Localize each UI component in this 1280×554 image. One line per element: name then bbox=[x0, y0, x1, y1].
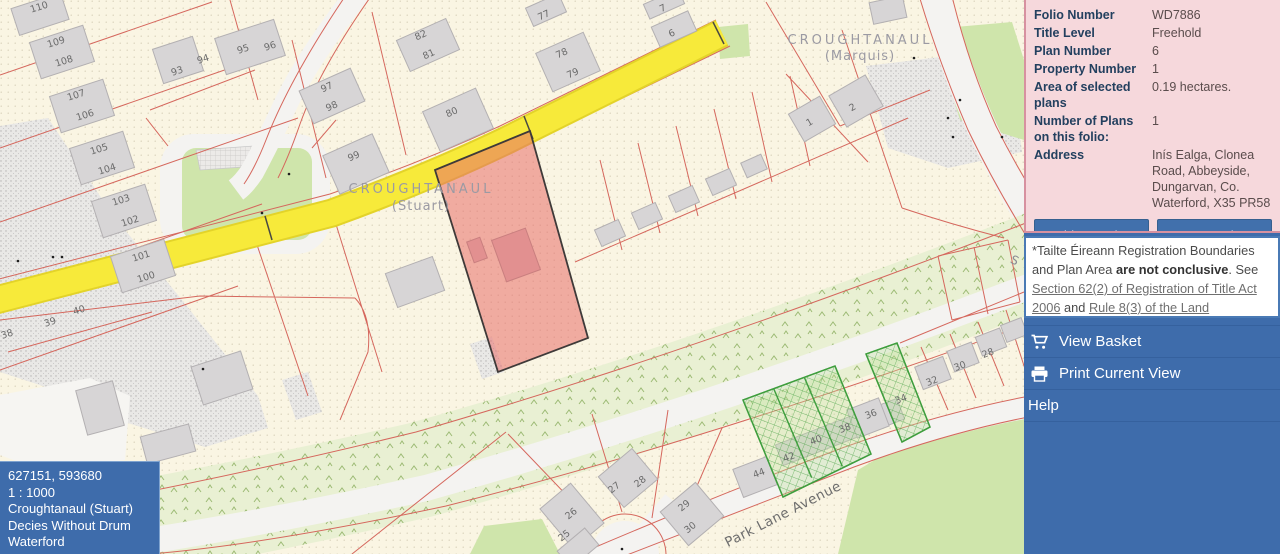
folio-row-value: 0.19 hectares. bbox=[1152, 79, 1280, 111]
folio-info-panel: Folio NumberWD7886 Title LevelFreehold P… bbox=[1024, 0, 1280, 233]
status-barony: Decies Without Drum bbox=[8, 518, 151, 535]
folio-row-value: 1 bbox=[1152, 61, 1280, 77]
view-basket-item[interactable]: View Basket bbox=[1024, 326, 1280, 358]
printer-icon bbox=[1031, 366, 1049, 382]
townland-stuart-name: CROUGHTANAUL bbox=[349, 182, 494, 197]
folio-row: Folio NumberWD7886 bbox=[1034, 6, 1280, 24]
map-viewer: CROUGHTANAUL (Marquis) CROUGHTANAUL (Stu… bbox=[0, 0, 1280, 554]
townland-marquis-name: CROUGHTANAUL bbox=[788, 33, 933, 48]
status-scale: 1 : 1000 bbox=[8, 485, 151, 502]
boundaries-disclaimer: *Tailte Éireann Registration Boundaries … bbox=[1024, 236, 1280, 318]
folio-row-label: Title Level bbox=[1034, 25, 1152, 41]
help-label: Help bbox=[1028, 397, 1059, 414]
folio-row-value: Inís Ealga, Clonea Road, Abbeyside, Dung… bbox=[1152, 147, 1280, 211]
map-status-box: 627151, 593680 1 : 1000 Croughtanaul (St… bbox=[0, 461, 160, 554]
folio-row: Property Number1 bbox=[1034, 60, 1280, 78]
sidebar-menu: View Basket Print Current View Help bbox=[1024, 325, 1280, 422]
folio-row-label: Folio Number bbox=[1034, 7, 1152, 23]
print-current-view-label: Print Current View bbox=[1059, 365, 1180, 382]
print-current-view-item[interactable]: Print Current View bbox=[1024, 358, 1280, 390]
add-to-basket-button[interactable]: Add to Basket bbox=[1034, 219, 1149, 233]
folio-row-label: Number of Plans on this folio: bbox=[1034, 113, 1152, 145]
folio-row-value: WD7886 bbox=[1152, 7, 1280, 23]
folio-row-value: 1 bbox=[1152, 113, 1280, 145]
folio-row-label: Address bbox=[1034, 147, 1152, 211]
folio-row-label: Area of selected plans bbox=[1034, 79, 1152, 111]
right-sidebar: Folio NumberWD7886 Title LevelFreehold P… bbox=[1024, 0, 1280, 554]
create-alert-button[interactable]: Create Alert bbox=[1157, 219, 1272, 233]
folio-row-value: 6 bbox=[1152, 43, 1280, 59]
status-coordinates: 627151, 593680 bbox=[8, 468, 151, 485]
folio-row-value: Freehold bbox=[1152, 25, 1280, 41]
folio-row: Plan Number6 bbox=[1034, 42, 1280, 60]
disclaimer-bold: are not conclusive bbox=[1116, 262, 1228, 277]
folio-row: Area of selected plans0.19 hectares. bbox=[1034, 78, 1280, 112]
townland-stuart-qualifier: (Stuart) bbox=[392, 199, 450, 214]
view-basket-label: View Basket bbox=[1059, 333, 1141, 350]
folio-row: AddressInís Ealga, Clonea Road, Abbeysid… bbox=[1034, 146, 1280, 212]
folio-row: Title LevelFreehold bbox=[1034, 24, 1280, 42]
folio-row: Number of Plans on this folio:1 bbox=[1034, 112, 1280, 146]
help-item[interactable]: Help bbox=[1024, 390, 1280, 422]
folio-row-label: Property Number bbox=[1034, 61, 1152, 77]
cart-icon bbox=[1031, 334, 1049, 350]
townland-marquis-qualifier: (Marquis) bbox=[825, 49, 895, 64]
status-townland: Croughtanaul (Stuart) bbox=[8, 501, 151, 518]
status-county: Waterford bbox=[8, 534, 151, 551]
folio-row-label: Plan Number bbox=[1034, 43, 1152, 59]
